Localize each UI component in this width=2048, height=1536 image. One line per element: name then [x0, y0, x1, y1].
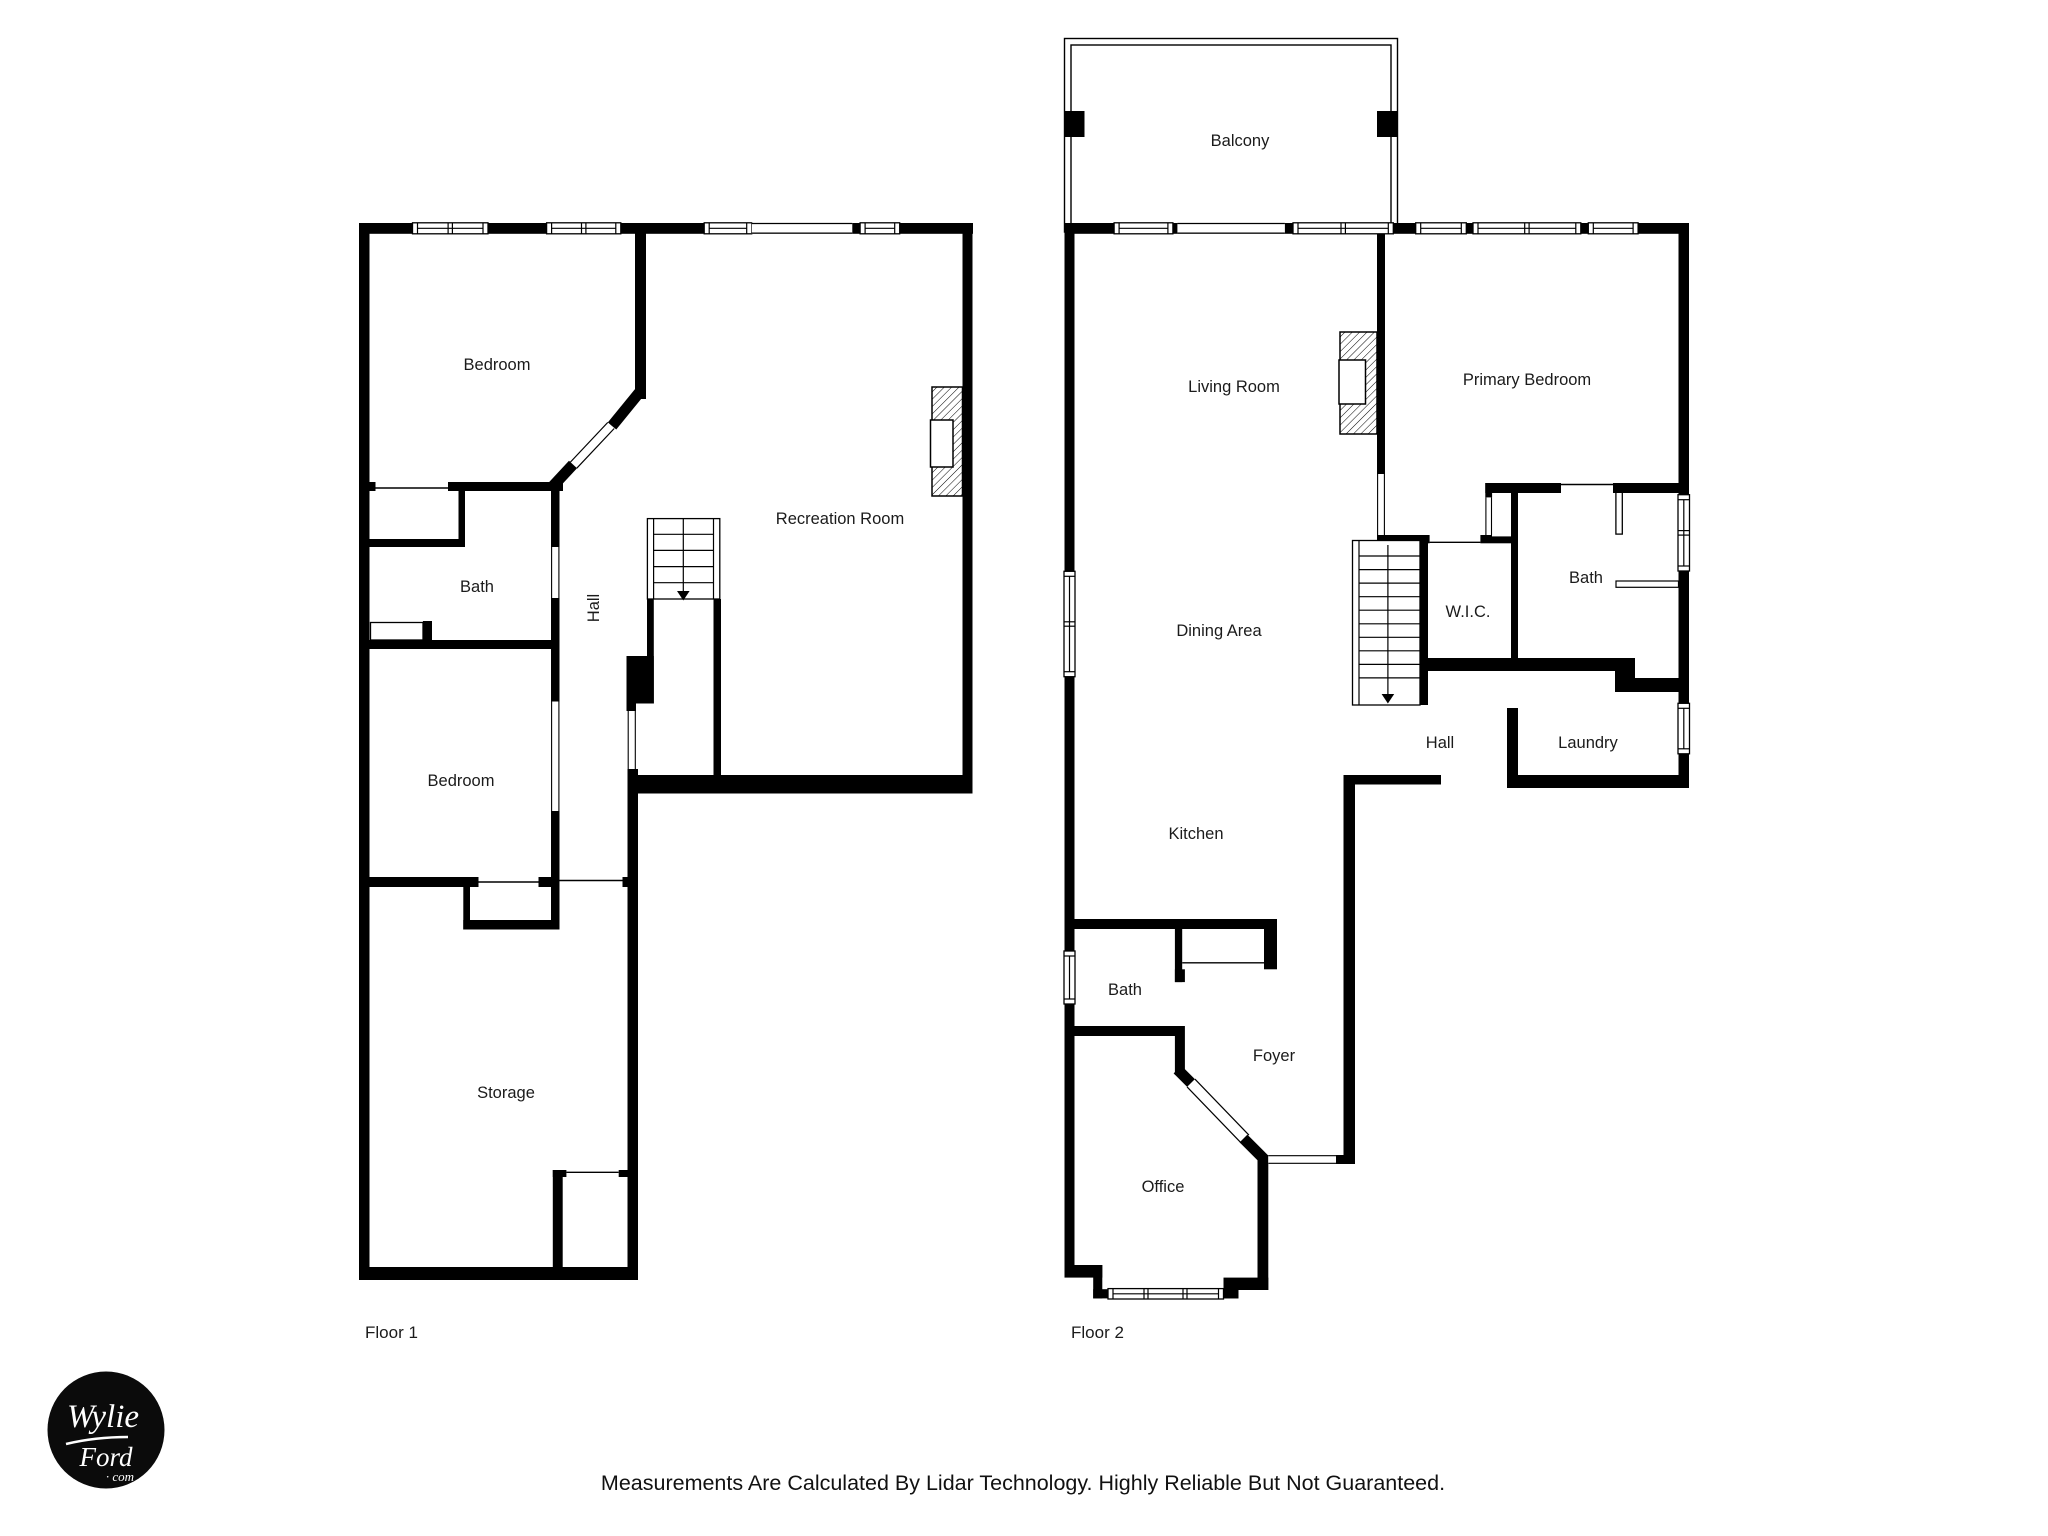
svg-text:Dining Area: Dining Area [1176, 622, 1262, 640]
svg-text:Hall: Hall [585, 594, 603, 622]
svg-text:Balcony: Balcony [1211, 132, 1270, 150]
svg-text:Bedroom: Bedroom [464, 356, 531, 374]
svg-text:Bath: Bath [1108, 981, 1142, 999]
svg-text:· com: · com [106, 1469, 134, 1484]
svg-text:Primary Bedroom: Primary Bedroom [1463, 371, 1591, 389]
svg-text:Floor 1: Floor 1 [365, 1323, 418, 1342]
svg-text:Storage: Storage [477, 1084, 535, 1102]
svg-text:Bath: Bath [1569, 569, 1603, 587]
svg-text:Bedroom: Bedroom [428, 772, 495, 790]
svg-text:Laundry: Laundry [1558, 734, 1618, 752]
svg-text:Floor 2: Floor 2 [1071, 1323, 1124, 1342]
svg-text:Hall: Hall [1426, 734, 1454, 752]
svg-text:Living Room: Living Room [1188, 378, 1280, 396]
svg-text:Recreation Room: Recreation Room [776, 510, 904, 528]
svg-text:Wylie: Wylie [67, 1399, 139, 1435]
svg-text:Foyer: Foyer [1253, 1047, 1296, 1065]
svg-text:Measurements Are Calculated By: Measurements Are Calculated By Lidar Tec… [601, 1471, 1445, 1495]
svg-text:W.I.C.: W.I.C. [1446, 603, 1491, 621]
svg-text:Ford: Ford [79, 1442, 133, 1472]
svg-text:Kitchen: Kitchen [1168, 825, 1223, 843]
svg-text:Office: Office [1142, 1178, 1185, 1196]
svg-text:Bath: Bath [460, 578, 494, 596]
